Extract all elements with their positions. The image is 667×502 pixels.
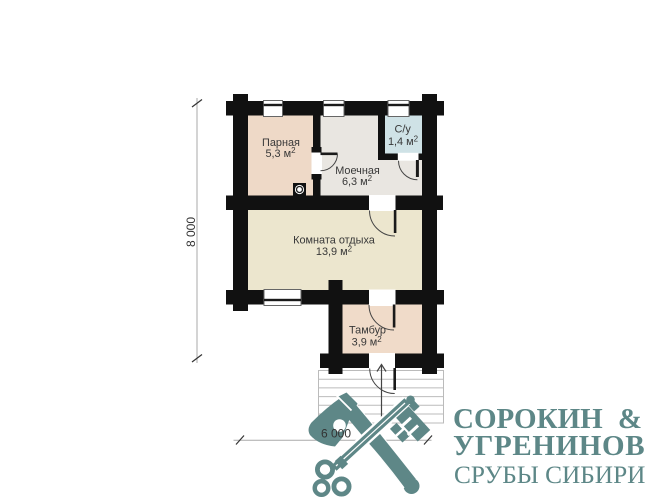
svg-text:13,9 м2: 13,9 м2: [316, 244, 353, 258]
svg-text:УГРЕНИНОВ: УГРЕНИНОВ: [453, 430, 645, 462]
svg-text:Комната отдыха: Комната отдыха: [293, 235, 376, 247]
svg-text:СРУБЫ СИБИРИ: СРУБЫ СИБИРИ: [454, 461, 645, 489]
svg-text:6 000: 6 000: [321, 426, 351, 440]
svg-text:8 000: 8 000: [184, 217, 198, 247]
svg-text:С/у: С/у: [395, 124, 412, 136]
